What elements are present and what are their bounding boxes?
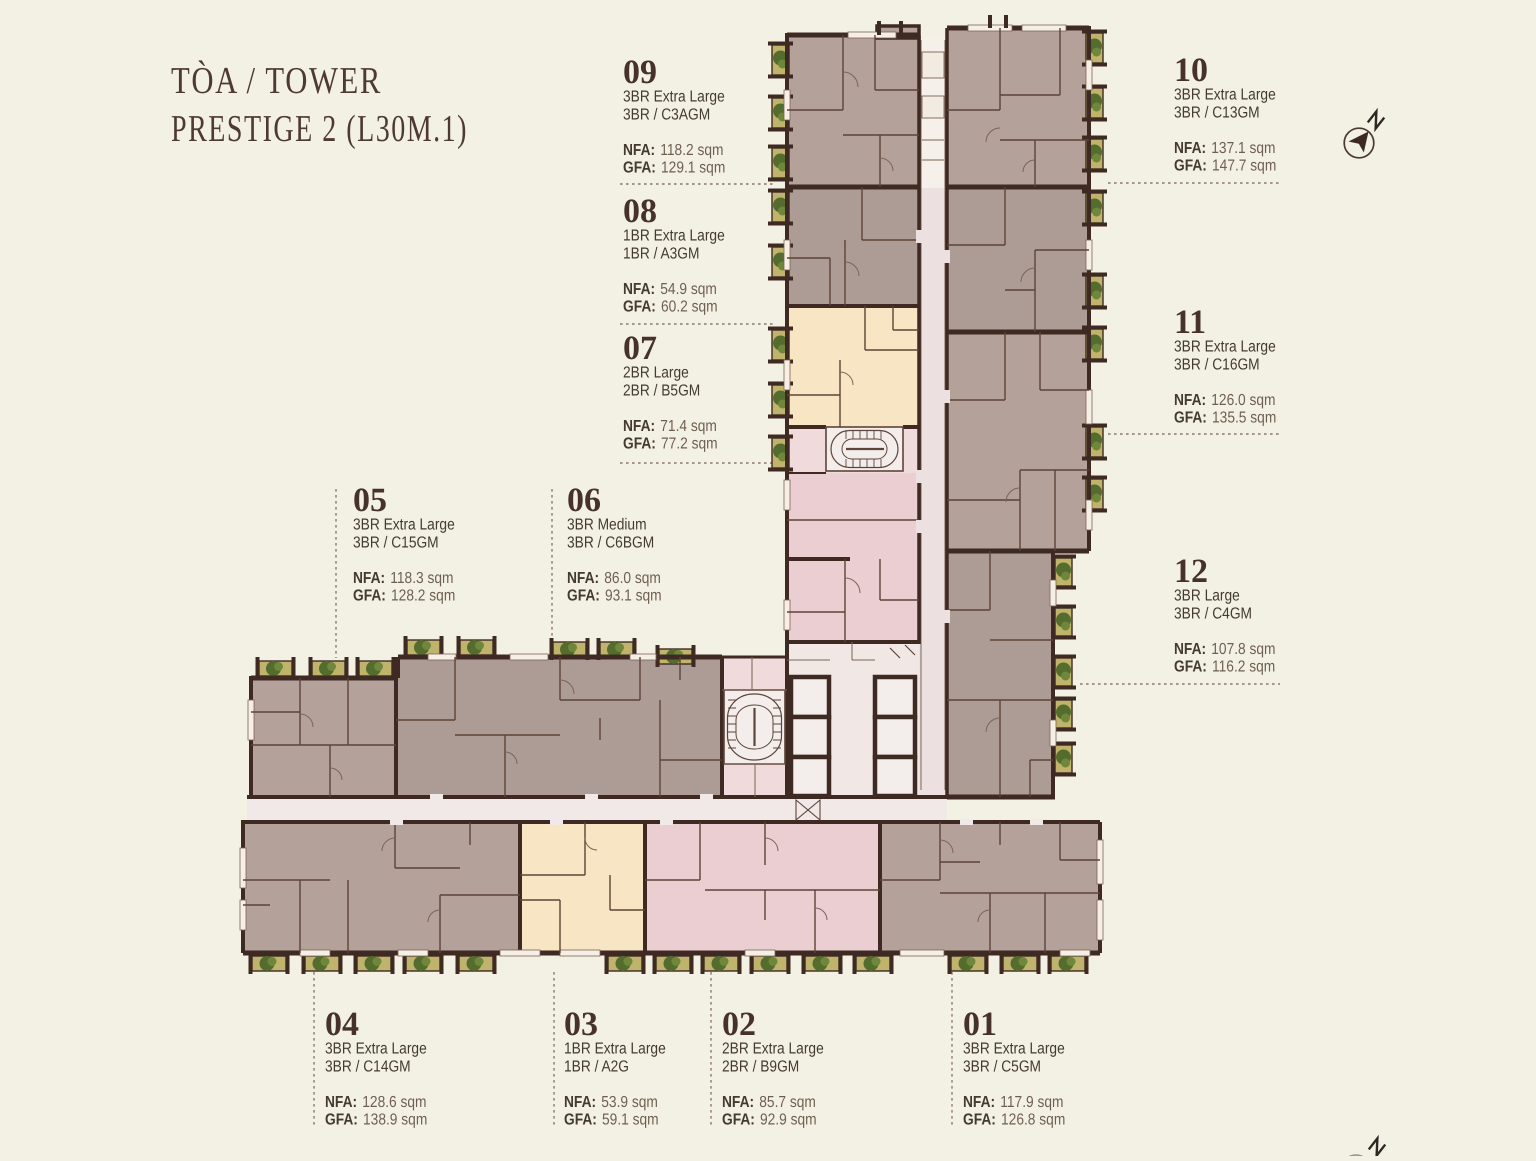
svg-text:1BR / A2G: 1BR / A2G <box>564 1059 629 1076</box>
svg-text:NFA:118.2 sqm: NFA:118.2 sqm <box>623 142 723 159</box>
svg-text:02: 02 <box>722 1006 756 1043</box>
svg-text:11: 11 <box>1174 304 1206 341</box>
svg-text:08: 08 <box>623 193 657 230</box>
svg-text:2BR Large: 2BR Large <box>623 365 689 382</box>
svg-text:3BR / C16GM: 3BR / C16GM <box>1174 357 1260 374</box>
svg-text:GFA:93.1 sqm: GFA:93.1 sqm <box>567 588 662 605</box>
svg-text:GFA:138.9 sqm: GFA:138.9 sqm <box>325 1112 427 1129</box>
svg-text:3BR / C3AGM: 3BR / C3AGM <box>623 107 710 124</box>
svg-text:GFA:126.8 sqm: GFA:126.8 sqm <box>963 1112 1065 1129</box>
svg-text:3BR / C4GM: 3BR / C4GM <box>1174 606 1252 623</box>
svg-text:10: 10 <box>1174 52 1208 89</box>
svg-text:GFA:59.1 sqm: GFA:59.1 sqm <box>564 1112 659 1129</box>
svg-text:1BR Extra Large: 1BR Extra Large <box>623 228 725 245</box>
svg-text:3BR Extra Large: 3BR Extra Large <box>1174 87 1276 104</box>
svg-text:NFA:118.3 sqm: NFA:118.3 sqm <box>353 570 453 587</box>
svg-text:3BR / C13GM: 3BR / C13GM <box>1174 105 1260 122</box>
svg-text:1BR Extra Large: 1BR Extra Large <box>564 1041 666 1058</box>
svg-text:1BR / A3GM: 1BR / A3GM <box>623 246 699 263</box>
svg-text:3BR / C6BGM: 3BR / C6BGM <box>567 535 654 552</box>
svg-text:NFA:53.9 sqm: NFA:53.9 sqm <box>564 1094 658 1111</box>
svg-text:3BR / C15GM: 3BR / C15GM <box>353 535 439 552</box>
svg-text:04: 04 <box>325 1006 359 1043</box>
svg-text:GFA:92.9 sqm: GFA:92.9 sqm <box>722 1112 817 1129</box>
svg-text:09: 09 <box>623 54 657 91</box>
svg-text:03: 03 <box>564 1006 598 1043</box>
svg-text:GFA:77.2 sqm: GFA:77.2 sqm <box>623 436 718 453</box>
svg-text:3BR Extra Large: 3BR Extra Large <box>353 517 455 534</box>
svg-text:PRESTIGE 2 (L30M.1): PRESTIGE 2 (L30M.1) <box>171 108 468 150</box>
svg-text:NFA:71.4 sqm: NFA:71.4 sqm <box>623 418 717 435</box>
svg-text:3BR / C5GM: 3BR / C5GM <box>963 1059 1041 1076</box>
svg-text:12: 12 <box>1174 553 1208 590</box>
svg-text:3BR Medium: 3BR Medium <box>567 517 647 534</box>
svg-text:3BR Extra Large: 3BR Extra Large <box>623 89 725 106</box>
svg-text:NFA:86.0 sqm: NFA:86.0 sqm <box>567 570 661 587</box>
svg-text:TÒA / TOWER: TÒA / TOWER <box>171 60 382 102</box>
svg-text:GFA:135.5 sqm: GFA:135.5 sqm <box>1174 410 1276 427</box>
svg-text:NFA:128.6 sqm: NFA:128.6 sqm <box>325 1094 427 1111</box>
svg-text:07: 07 <box>623 330 657 367</box>
svg-text:GFA:129.1 sqm: GFA:129.1 sqm <box>623 160 725 177</box>
svg-text:2BR / B5GM: 2BR / B5GM <box>623 383 700 400</box>
svg-text:2BR Extra Large: 2BR Extra Large <box>722 1041 824 1058</box>
svg-text:01: 01 <box>963 1006 997 1043</box>
svg-text:06: 06 <box>567 482 601 519</box>
svg-text:GFA:147.7 sqm: GFA:147.7 sqm <box>1174 158 1276 175</box>
svg-text:3BR Extra Large: 3BR Extra Large <box>963 1041 1065 1058</box>
svg-text:3BR Large: 3BR Large <box>1174 588 1240 605</box>
svg-text:3BR / C14GM: 3BR / C14GM <box>325 1059 411 1076</box>
svg-text:GFA:116.2 sqm: GFA:116.2 sqm <box>1174 659 1275 676</box>
svg-text:GFA:60.2 sqm: GFA:60.2 sqm <box>623 299 718 316</box>
svg-text:3BR Extra Large: 3BR Extra Large <box>325 1041 427 1058</box>
svg-text:NFA:107.8 sqm: NFA:107.8 sqm <box>1174 641 1276 658</box>
svg-text:NFA:54.9 sqm: NFA:54.9 sqm <box>623 281 717 298</box>
svg-text:NFA:85.7 sqm: NFA:85.7 sqm <box>722 1094 816 1111</box>
svg-text:3BR Extra Large: 3BR Extra Large <box>1174 339 1276 356</box>
svg-text:NFA:126.0 sqm: NFA:126.0 sqm <box>1174 392 1276 409</box>
svg-text:GFA:128.2 sqm: GFA:128.2 sqm <box>353 588 455 605</box>
svg-text:2BR / B9GM: 2BR / B9GM <box>722 1059 799 1076</box>
svg-text:05: 05 <box>353 482 387 519</box>
svg-text:NFA:137.1 sqm: NFA:137.1 sqm <box>1174 140 1276 157</box>
svg-text:NFA:117.9 sqm: NFA:117.9 sqm <box>963 1094 1063 1111</box>
